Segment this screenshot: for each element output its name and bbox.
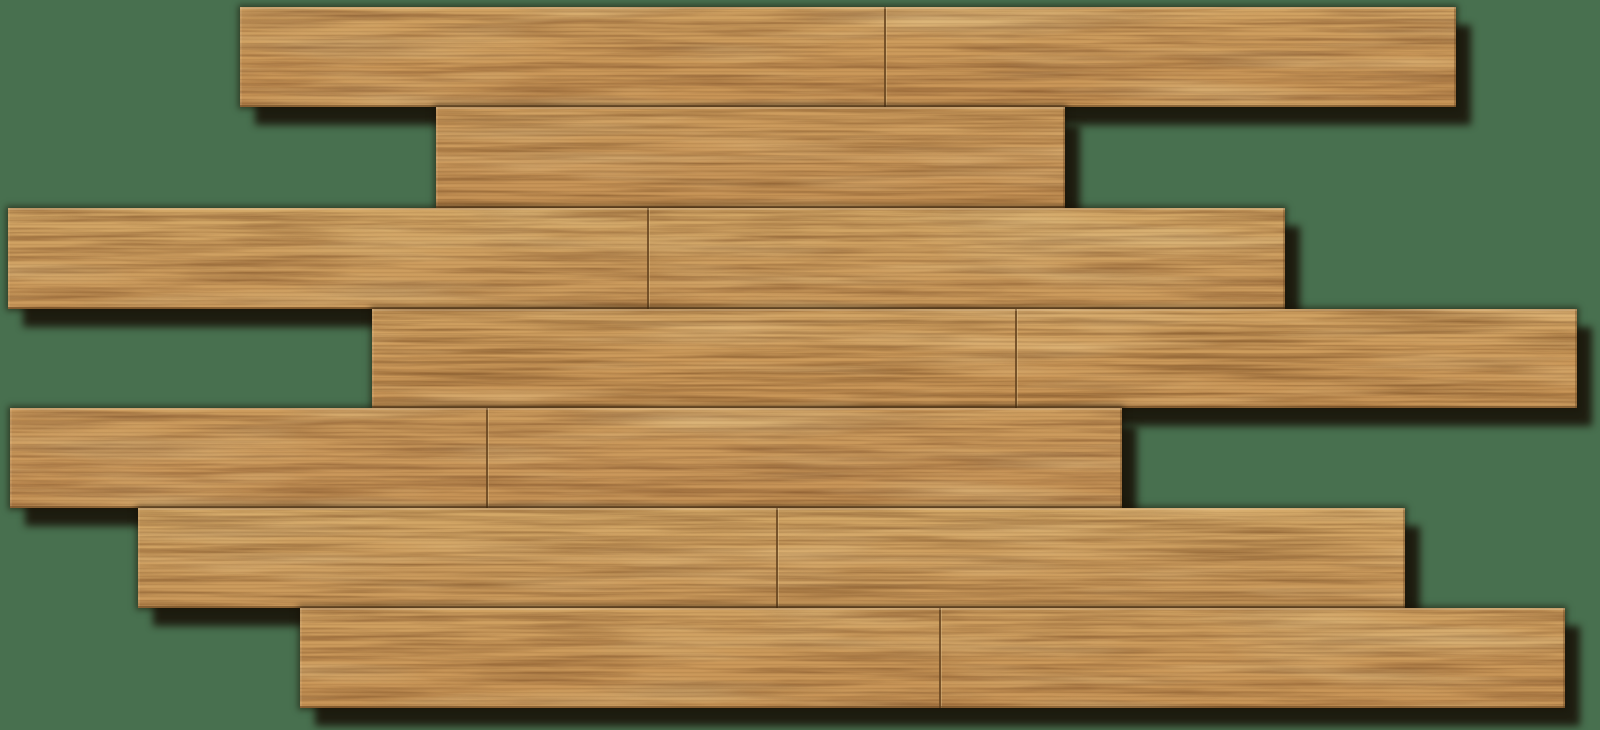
wood-plank	[138, 508, 1405, 608]
plank-edge-bevel	[372, 309, 1577, 408]
wood-plank	[240, 7, 1456, 107]
plank-panel	[0, 0, 1600, 730]
wood-plank	[300, 608, 1565, 708]
wood-plank	[372, 309, 1577, 408]
plank-edge-bevel	[240, 7, 1456, 107]
plank-edge-bevel	[138, 508, 1405, 608]
plank-edge-bevel	[300, 608, 1565, 708]
wood-plank	[8, 208, 1285, 309]
plank-edge-bevel	[8, 208, 1285, 309]
wood-plank	[10, 408, 1122, 508]
plank-edge-bevel	[436, 107, 1065, 208]
plank-edge-bevel	[10, 408, 1122, 508]
wood-plank	[436, 107, 1065, 208]
